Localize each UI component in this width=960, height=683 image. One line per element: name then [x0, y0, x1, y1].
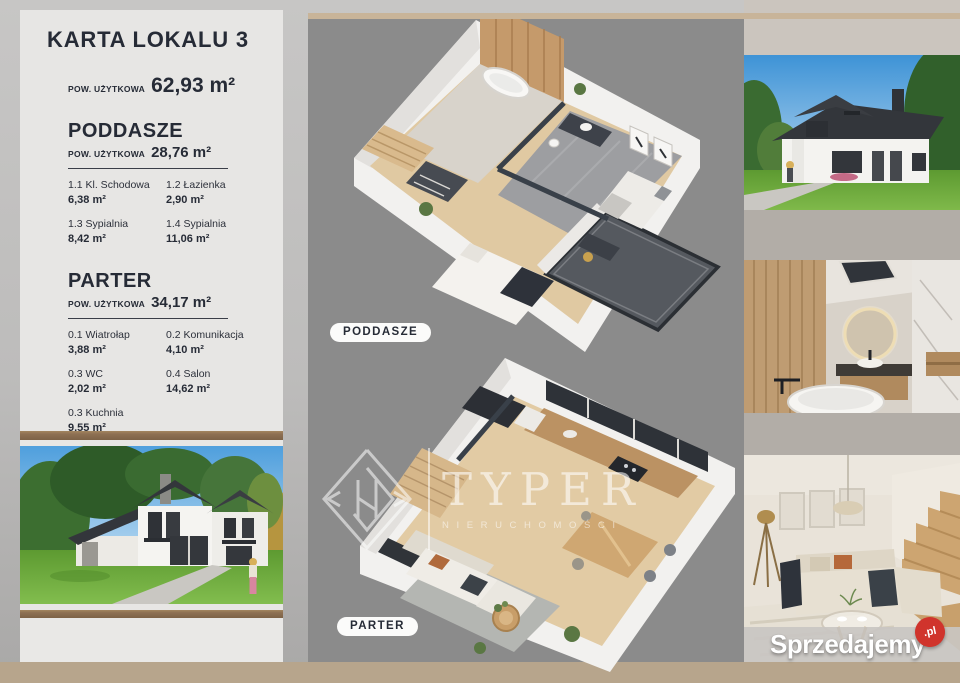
- listing-card-page: KARTA LOKALU 3 POW. UŻYTKOWA 62,93 m² PO…: [0, 0, 960, 683]
- section-poddasze: PODDASZE POW. UŻYTKOWA 28,76 m² 1.1 Kl. …: [68, 120, 250, 245]
- room-name: 0.3 WC: [68, 368, 156, 380]
- stool: [583, 252, 593, 262]
- brown-divider-stripe: [20, 610, 283, 618]
- divider: [68, 318, 228, 319]
- bathroom-photo: [744, 260, 960, 413]
- top-accent-line: [308, 13, 960, 19]
- room-area: 2,90 m²: [166, 194, 250, 206]
- right-column-top-band: [744, 0, 960, 55]
- divider: [68, 168, 228, 169]
- room-name: 1.1 Kl. Schodowa: [68, 179, 156, 191]
- parter-area-label: POW. UŻYTKOWA: [68, 299, 145, 309]
- room-name: 1.3 Sypialnia: [68, 218, 156, 230]
- room-item: 0.3 WC 2,02 m²: [68, 368, 156, 395]
- room-name: 1.4 Sypialnia: [166, 218, 250, 230]
- poddasze-area-label: POW. UŻYTKOWA: [68, 149, 145, 159]
- poddasze-plan-render: [354, 19, 718, 352]
- sprzedajemy-logo: Sprzedajemy: [770, 629, 925, 660]
- left-bottom-blank: [20, 618, 283, 662]
- parter-area-row: POW. UŻYTKOWA 34,17 m²: [68, 294, 250, 311]
- room-item: 1.3 Sypialnia 8,42 m²: [68, 218, 156, 245]
- room-item: 0.1 Wiatrołap 3,88 m²: [68, 329, 156, 356]
- marble-wall: [912, 260, 960, 413]
- section-parter: PARTER POW. UŻYTKOWA 34,17 m² 0.1 Wiatro…: [68, 270, 250, 434]
- parter-room-list: 0.1 Wiatrołap 3,88 m² 0.2 Komunikacja 4,…: [68, 329, 250, 434]
- sprzedajemy-logo-band: Sprzedajemy .pl: [744, 627, 960, 662]
- room-area: 14,62 m²: [166, 383, 250, 395]
- sink: [580, 123, 592, 131]
- parter-heading: PARTER: [68, 270, 250, 293]
- room-item: 1.4 Sypialnia 11,06 m²: [166, 218, 250, 245]
- room-name: 0.3 Kuchnia: [68, 407, 156, 419]
- room-item: 0.3 Kuchnia 9,55 m²: [68, 407, 156, 434]
- poddasze-heading: PODDASZE: [68, 120, 250, 143]
- room-area: 11,06 m²: [166, 233, 250, 245]
- room-name: 0.2 Komunikacja: [166, 329, 250, 341]
- room-name: 0.1 Wiatrołap: [68, 329, 156, 341]
- room-area: 8,42 m²: [68, 233, 156, 245]
- room-area: 3,88 m²: [68, 344, 156, 356]
- person: [249, 558, 257, 594]
- room-area: 2,02 m²: [68, 383, 156, 395]
- brown-divider-stripe: [20, 431, 283, 440]
- card-title: KARTA LOKALU 3: [47, 27, 249, 53]
- exterior-photo-left: [20, 446, 283, 604]
- plant: [474, 642, 486, 654]
- bathtub: [788, 385, 884, 413]
- poddasze-label-pill: PODDASZE: [330, 323, 431, 342]
- plant: [574, 83, 586, 95]
- room-name: 1.2 Łazienka: [166, 179, 250, 191]
- parter-area-value: 34,17 m²: [151, 294, 211, 311]
- room-item: 1.1 Kl. Schodowa 6,38 m²: [68, 179, 156, 206]
- room-item: 1.2 Łazienka 2,90 m²: [166, 179, 250, 206]
- poddasze-area-row: POW. UŻYTKOWA 28,76 m²: [68, 144, 250, 161]
- plant: [419, 202, 433, 216]
- poddasze-area-value: 28,76 m²: [151, 144, 211, 161]
- total-area-value: 62,93 m²: [151, 74, 235, 98]
- room-area: 6,38 m²: [68, 194, 156, 206]
- parter-label-pill: PARTER: [337, 617, 418, 636]
- total-area-label: POW. UŻYTKOWA: [68, 84, 145, 94]
- toilet: [549, 139, 559, 147]
- room-item: 0.2 Komunikacja 4,10 m²: [166, 329, 250, 356]
- exterior-photo-right: [744, 55, 960, 210]
- total-area-row: POW. UŻYTKOWA 62,93 m²: [68, 74, 235, 98]
- room-area: 4,10 m²: [166, 344, 250, 356]
- room-item: 0.4 Salon 14,62 m²: [166, 368, 250, 395]
- room-name: 0.4 Salon: [166, 368, 250, 380]
- kitchen-sink: [563, 430, 577, 438]
- plant: [564, 626, 580, 642]
- poddasze-room-list: 1.1 Kl. Schodowa 6,38 m² 1.2 Łazienka 2,…: [68, 179, 250, 245]
- unit-card: KARTA LOKALU 3 POW. UŻYTKOWA 62,93 m² PO…: [20, 10, 283, 431]
- poddasze-floor-plan: [330, 19, 732, 360]
